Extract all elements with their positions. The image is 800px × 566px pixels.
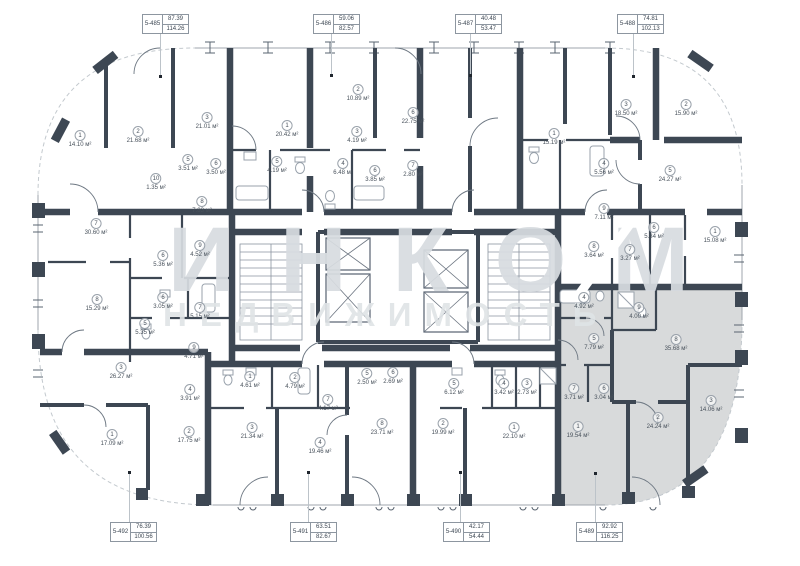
unit-leader-line — [595, 473, 596, 522]
room-number: 7 — [408, 160, 419, 171]
room-number: 5 — [665, 165, 676, 176]
room-area: 3.64 м² — [584, 253, 603, 260]
room-number: 4 — [315, 437, 326, 448]
room-area: 7.79 м² — [584, 345, 603, 352]
room-number: 1 — [573, 421, 584, 432]
room-label: 65.36 м² — [153, 250, 172, 269]
room-area: 24.24 м² — [647, 424, 670, 431]
room-number: 3 — [247, 422, 258, 433]
room-label: 55.35 м² — [135, 318, 154, 337]
room-number: 3 — [352, 126, 363, 137]
room-label: 73.27 м² — [620, 244, 639, 263]
unit-leader-line — [633, 34, 634, 76]
room-area: 30.60 м² — [85, 230, 108, 237]
room-label: 63.85 м² — [365, 165, 384, 184]
floorplan-stage: ИНКОМ НЕДВИЖИМОСТЬ 114.10 м²221.68 м²321… — [0, 0, 800, 566]
unit-leader-dot — [469, 74, 472, 77]
room-label: 730.60 м² — [85, 218, 108, 237]
room-label: 119.54 м² — [567, 421, 590, 440]
room-number: 4 — [579, 292, 590, 303]
unit-id: 5-486 — [314, 15, 334, 33]
unit-area-living: 87.39 — [163, 15, 188, 25]
room-number: 8 — [589, 241, 600, 252]
room-area: 22.10 м² — [503, 434, 526, 441]
stairs — [240, 244, 550, 340]
room-area: 14.06 м² — [700, 407, 723, 414]
room-number: 2 — [653, 412, 664, 423]
unit-label-5-487: 5-48740.4853.47 — [455, 14, 502, 34]
room-number: 9 — [634, 302, 645, 313]
room-label: 835.68 м² — [665, 334, 688, 353]
room-number: 2 — [438, 418, 449, 429]
room-label: 83.64 м² — [584, 241, 603, 260]
room-label: 74.17 м² — [318, 394, 337, 413]
room-label: 219.99 м² — [432, 418, 455, 437]
unit-leader-line — [470, 34, 471, 75]
room-area: 4.79 м² — [285, 384, 304, 391]
unit-id: 5-492 — [111, 523, 131, 541]
room-number: 7 — [91, 218, 102, 229]
room-label: 43.91 м² — [180, 384, 199, 403]
unit-area-total: 82.67 — [311, 533, 336, 542]
room-label: 221.68 м² — [127, 126, 150, 145]
room-label: 94.52 м² — [190, 240, 209, 259]
unit-areas: 40.4853.47 — [476, 15, 501, 33]
room-label: 75.15 м² — [190, 302, 209, 321]
room-area: 4.52 м² — [190, 252, 209, 259]
room-area: 19.54 м² — [567, 433, 590, 440]
room-area: 2.80 м² — [403, 172, 422, 179]
room-area: 35.68 м² — [665, 346, 688, 353]
room-number: 1 — [282, 120, 293, 131]
room-label: 54.19 м² — [267, 156, 286, 175]
room-number: 8 — [197, 196, 208, 207]
room-number: 1 — [710, 226, 721, 237]
room-number: 5 — [272, 156, 283, 167]
unit-areas: 63.5182.67 — [311, 523, 336, 541]
room-number: 6 — [370, 165, 381, 176]
room-number: 3 — [522, 378, 533, 389]
room-label: 114.10 м² — [69, 130, 92, 149]
room-number: 6 — [649, 222, 660, 233]
room-area: 3.05 м² — [153, 304, 172, 311]
room-area: 17.09 м² — [101, 441, 124, 448]
room-area: 4.71 м² — [184, 354, 203, 361]
room-label: 63.04 м² — [594, 383, 613, 402]
room-label: 56.12 м² — [444, 378, 463, 397]
room-label: 94.71 м² — [184, 342, 203, 361]
unit-id: 5-485 — [143, 15, 163, 33]
unit-label-5-485: 5-48587.39114.26 — [142, 14, 189, 34]
room-area: 3.51 м² — [178, 166, 197, 173]
room-number: 3 — [202, 112, 213, 123]
room-number: 9 — [189, 342, 200, 353]
room-area: 4.19 м² — [347, 138, 366, 145]
room-number: 4 — [599, 158, 610, 169]
room-area: 3.85 м² — [365, 177, 384, 184]
room-area: 21.34 м² — [241, 434, 264, 441]
room-label: 43.42 м² — [494, 378, 513, 397]
room-area: 10.89 м² — [347, 96, 370, 103]
unit-area-living: 59.06 — [334, 15, 359, 25]
room-label: 122.10 м² — [503, 422, 526, 441]
room-label: 326.27 м² — [110, 362, 133, 381]
unit-label-5-488: 5-48874.81102.13 — [617, 14, 664, 34]
unit-area-total: 102.13 — [638, 25, 663, 34]
room-area: 19.46 м² — [309, 449, 332, 456]
room-label: 321.34 м² — [241, 422, 264, 441]
room-number: 4 — [338, 158, 349, 169]
room-label: 419.46 м² — [309, 437, 332, 456]
unit-area-total: 53.47 — [476, 25, 501, 34]
room-area: 3.42 м² — [494, 390, 513, 397]
room-label: 72.80 м² — [403, 160, 422, 179]
room-number: 3 — [116, 362, 127, 373]
unit-areas: 92.92116.25 — [597, 523, 622, 541]
room-label: 101.35 м² — [146, 173, 165, 192]
room-area: 3.91 м² — [180, 396, 199, 403]
unit-label-5-490: 5-49042.1754.44 — [443, 522, 490, 542]
room-area: 4.19 м² — [267, 168, 286, 175]
room-label: 115.08 м² — [704, 226, 727, 245]
room-number: 4 — [185, 384, 196, 395]
unit-areas: 59.0682.57 — [334, 15, 359, 33]
room-label: 62.69 м² — [383, 367, 402, 386]
room-label: 63.50 м² — [206, 158, 225, 177]
room-area: 15.90 м² — [675, 111, 698, 118]
unit-areas: 87.39114.26 — [163, 15, 188, 33]
room-label: 321.01 м² — [196, 112, 219, 131]
room-number: 6 — [158, 250, 169, 261]
unit-area-total: 54.44 — [464, 533, 489, 542]
room-area: 2.50 м² — [357, 380, 376, 387]
unit-area-living: 63.51 — [311, 523, 336, 533]
room-label: 120.42 м² — [276, 120, 299, 139]
room-number: 8 — [377, 418, 388, 429]
unit-leader-line — [129, 472, 130, 522]
room-label: 224.24 м² — [647, 412, 670, 431]
room-number: 2 — [290, 372, 301, 383]
room-number: 8 — [671, 334, 682, 345]
room-label: 24.79 м² — [285, 372, 304, 391]
room-area: 20.42 м² — [276, 132, 299, 139]
floorplan-svg — [0, 0, 800, 566]
room-number: 6 — [599, 383, 610, 394]
room-number: 1 — [75, 130, 86, 141]
room-area: 7.83 м² — [192, 208, 211, 215]
room-area: 23.71 м² — [371, 430, 394, 437]
room-label: 524.27 м² — [659, 165, 682, 184]
elevator-core — [318, 232, 478, 342]
room-area: 5.56 м² — [594, 170, 613, 177]
room-number: 7 — [625, 244, 636, 255]
room-area: 5.15 м² — [190, 314, 209, 321]
room-area: 2.69 м² — [383, 379, 402, 386]
room-label: 53.51 м² — [178, 154, 197, 173]
room-label: 215.90 м² — [675, 99, 698, 118]
unit-id: 5-489 — [577, 523, 597, 541]
unit-leader-line — [331, 34, 332, 75]
unit-area-total: 82.57 — [334, 25, 359, 34]
room-area: 4.00 м² — [629, 314, 648, 321]
room-label: 57.79 м² — [584, 333, 603, 352]
room-number: 5 — [140, 318, 151, 329]
unit-area-living: 40.48 — [476, 15, 501, 25]
room-area: 5.34 м² — [644, 234, 663, 241]
room-number: 6 — [211, 158, 222, 169]
unit-leader-dot — [459, 471, 462, 474]
room-label: 87.83 м² — [192, 196, 211, 215]
room-area: 3.71 м² — [564, 395, 583, 402]
room-area: 14.10 м² — [69, 142, 92, 149]
room-area: 1.35 м² — [146, 185, 165, 192]
room-number: 1 — [549, 128, 560, 139]
room-number: 4 — [499, 378, 510, 389]
room-number: 2 — [133, 126, 144, 137]
unit-leader-dot — [330, 74, 333, 77]
room-area: 5.36 м² — [153, 262, 172, 269]
unit-leader-line — [460, 472, 461, 522]
room-number: 2 — [184, 426, 195, 437]
room-label: 314.06 м² — [700, 395, 723, 414]
unit-leader-line — [160, 34, 161, 76]
room-area: 17.75 м² — [178, 438, 201, 445]
room-area: 4.92 м² — [574, 304, 593, 311]
unit-area-living: 76.39 — [131, 523, 156, 533]
room-area: 5.35 м² — [135, 330, 154, 337]
room-area: 15.29 м² — [86, 306, 109, 313]
room-area: 22.75 м² — [402, 119, 425, 126]
room-label: 318.50 м² — [615, 99, 638, 118]
unit-area-total: 100.56 — [131, 533, 156, 542]
room-area: 4.61 м² — [240, 383, 259, 390]
unit-label-5-491: 5-49163.5182.67 — [290, 522, 337, 542]
room-label: 45.56 м² — [594, 158, 613, 177]
room-area: 7.11 м² — [594, 215, 613, 222]
room-label: 65.34 м² — [644, 222, 663, 241]
room-label: 44.92 м² — [574, 292, 593, 311]
room-number: 5 — [589, 333, 600, 344]
room-area: 3.50 м² — [206, 170, 225, 177]
unit-leader-dot — [159, 75, 162, 78]
room-label: 52.50 м² — [357, 368, 376, 387]
room-number: 1 — [509, 422, 520, 433]
room-number: 9 — [599, 203, 610, 214]
room-number: 9 — [195, 240, 206, 251]
room-number: 2 — [353, 84, 364, 95]
room-number: 6 — [158, 292, 169, 303]
room-label: 115.19 м² — [543, 128, 566, 147]
room-label: 622.75 м² — [402, 107, 425, 126]
room-label: 46.48 м² — [333, 158, 352, 177]
room-area: 19.99 м² — [432, 430, 455, 437]
room-area: 15.08 м² — [704, 238, 727, 245]
unit-area-living: 74.81 — [638, 15, 663, 25]
room-label: 117.09 м² — [101, 429, 124, 448]
room-area: 24.27 м² — [659, 177, 682, 184]
room-number: 3 — [621, 99, 632, 110]
unit-id: 5-487 — [456, 15, 476, 33]
room-number: 8 — [92, 294, 103, 305]
room-label: 815.29 м² — [86, 294, 109, 313]
room-number: 2 — [681, 99, 692, 110]
unit-label-5-492: 5-49276.39100.56 — [110, 522, 157, 542]
unit-area-living: 92.92 — [597, 523, 622, 533]
room-label: 210.89 м² — [347, 84, 370, 103]
room-area: 4.17 м² — [318, 406, 337, 413]
room-area: 21.01 м² — [196, 124, 219, 131]
unit-area-total: 114.26 — [163, 25, 188, 34]
unit-label-5-489: 5-48992.92116.25 — [576, 522, 623, 542]
room-number: 10 — [151, 173, 162, 184]
room-number: 1 — [107, 429, 118, 440]
room-area: 18.50 м² — [615, 111, 638, 118]
room-number: 6 — [388, 367, 399, 378]
unit-id: 5-490 — [444, 523, 464, 541]
room-number: 5 — [449, 378, 460, 389]
unit-leader-dot — [307, 471, 310, 474]
room-number: 7 — [195, 302, 206, 313]
unit-label-5-486: 5-48659.0682.57 — [313, 14, 360, 34]
room-area: 26.27 м² — [110, 374, 133, 381]
room-number: 5 — [183, 154, 194, 165]
unit-area-total: 116.25 — [597, 533, 622, 542]
room-number: 6 — [408, 107, 419, 118]
room-number: 1 — [245, 371, 256, 382]
room-area: 2.73 м² — [517, 390, 536, 397]
room-area: 6.12 м² — [444, 390, 463, 397]
unit-area-living: 42.17 — [464, 523, 489, 533]
room-label: 73.71 м² — [564, 383, 583, 402]
unit-leader-line — [308, 472, 309, 522]
unit-id: 5-491 — [291, 523, 311, 541]
unit-leader-dot — [594, 472, 597, 475]
room-number: 7 — [569, 383, 580, 394]
unit-id: 5-488 — [618, 15, 638, 33]
room-label: 823.71 м² — [371, 418, 394, 437]
unit-areas: 74.81102.13 — [638, 15, 663, 33]
unit-leader-dot — [632, 75, 635, 78]
unit-leader-dot — [128, 471, 131, 474]
room-label: 32.73 м² — [517, 378, 536, 397]
room-label: 217.75 м² — [178, 426, 201, 445]
unit-areas: 76.39100.56 — [131, 523, 156, 541]
room-number: 7 — [323, 394, 334, 405]
room-number: 3 — [706, 395, 717, 406]
room-area: 3.27 м² — [620, 256, 639, 263]
room-label: 34.19 м² — [347, 126, 366, 145]
room-label: 14.61 м² — [240, 371, 259, 390]
room-label: 97.11 м² — [594, 203, 613, 222]
room-area: 21.68 м² — [127, 138, 150, 145]
room-label: 94.00 м² — [629, 302, 648, 321]
room-number: 5 — [362, 368, 373, 379]
unit-areas: 42.1754.44 — [464, 523, 489, 541]
room-label: 63.05 м² — [153, 292, 172, 311]
room-area: 6.48 м² — [333, 170, 352, 177]
room-area: 3.04 м² — [594, 395, 613, 402]
room-area: 15.19 м² — [543, 140, 566, 147]
